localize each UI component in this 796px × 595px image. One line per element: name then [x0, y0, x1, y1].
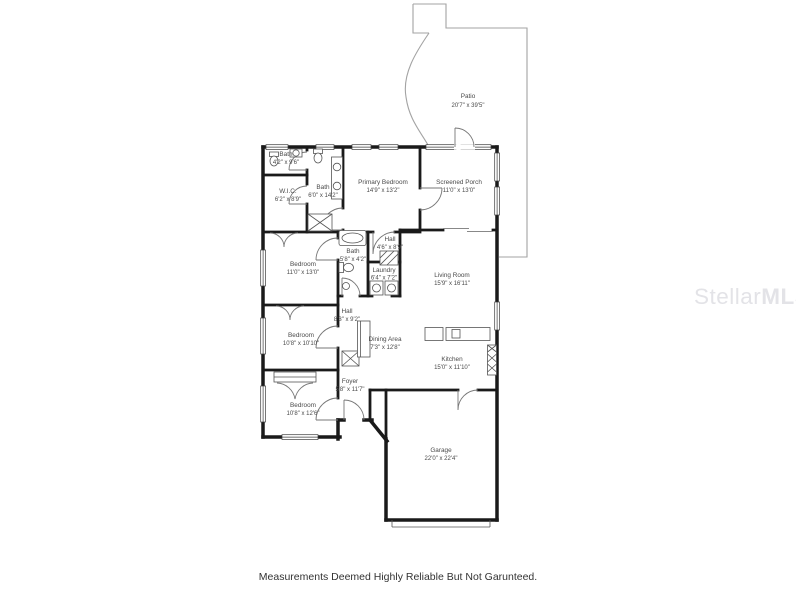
room-label-living-room: Living Room [434, 272, 470, 279]
room-label-foyer: Foyer [342, 378, 359, 385]
disclaimer-text: Measurements Deemed Highly Reliable But … [259, 571, 537, 583]
toilet-icon [339, 263, 354, 273]
room-label-bath-3: Bath [346, 248, 360, 255]
room-label-bedroom-2: Bedroom [288, 332, 314, 339]
room-label-patio: Patio [461, 93, 476, 100]
room-label-hall-1: Hall [384, 236, 395, 243]
room-dims-foyer: 5'8" x 11'7" [335, 387, 364, 393]
watermark-light: Stellar [694, 284, 761, 309]
room-label-screened-porch: Screened Porch [436, 179, 482, 186]
room-dims-wic: 6'2" x 8'9" [275, 197, 301, 203]
room-label-bath-2: Bath [316, 184, 330, 191]
stellar-mls-watermark: StellarMLS [694, 284, 796, 309]
room-label-dining-area: Dining Area [368, 336, 401, 343]
room-dims-living-room: 15'9" x 16'11" [434, 281, 470, 287]
bathtub-icon [339, 231, 366, 246]
floor-plan-drawing: Patio 20'7" x 39'5" Bath 4'2" x 9'6" W.I… [0, 0, 796, 595]
room-label-laundry: Laundry [372, 267, 396, 274]
toilet-icon [314, 149, 323, 163]
shower-icon [308, 214, 332, 231]
room-label-hall-2: Hall [341, 308, 352, 315]
room-dims-laundry: 6'4" x 7'2" [371, 276, 397, 282]
room-label-primary-bedroom: Primary Bedroom [358, 179, 408, 186]
closet-shelf-icon [274, 372, 316, 382]
sink-icon [343, 283, 350, 290]
patio-outline [405, 4, 527, 257]
room-dims-hall-1: 4'6" x 8'9" [377, 245, 403, 251]
kitchen-island-icon [425, 328, 490, 341]
room-label-wic: W.I.C. [279, 188, 297, 195]
watermark-bold: MLS [761, 284, 796, 309]
room-label-bedroom-3: Bedroom [290, 402, 316, 409]
room-dims-hall-2: 8'3" x 9'2" [334, 317, 360, 323]
room-dims-bedroom-1: 11'0" x 13'0" [287, 270, 319, 276]
closet-icon [342, 351, 359, 366]
room-label-kitchen: Kitchen [441, 356, 463, 363]
room-dims-bedroom-2: 10'8" x 10'10" [283, 341, 319, 347]
floor-plan-page: Patio 20'7" x 39'5" Bath 4'2" x 9'6" W.I… [0, 0, 796, 595]
washer-dryer-icon [370, 281, 398, 295]
room-dims-kitchen: 15'0" x 11'10" [434, 365, 470, 371]
room-dims-bedroom-3: 10'8" x 12'6" [287, 411, 320, 417]
room-label-bedroom-1: Bedroom [290, 261, 316, 268]
room-dims-dining-area: 7'3" x 12'8" [370, 345, 400, 351]
room-dims-primary-bedroom: 14'9" x 13'2" [367, 188, 400, 194]
room-dims-screened-porch: 11'0" x 13'0" [443, 188, 475, 194]
refrigerator-icon [488, 345, 497, 375]
room-dims-garage: 22'0" x 22'4" [425, 456, 458, 462]
room-dims-patio: 20'7" x 39'5" [452, 103, 485, 109]
room-label-bath-1: Bath [279, 151, 293, 158]
room-dims-bath-1: 4'2" x 9'6" [273, 160, 299, 166]
room-dims-bath-2: 6'0" x 14'2" [308, 193, 338, 199]
water-heater-icon [380, 251, 398, 265]
room-dims-bath-3: 5'8" x 4'2" [340, 257, 366, 263]
room-label-garage: Garage [430, 447, 452, 454]
